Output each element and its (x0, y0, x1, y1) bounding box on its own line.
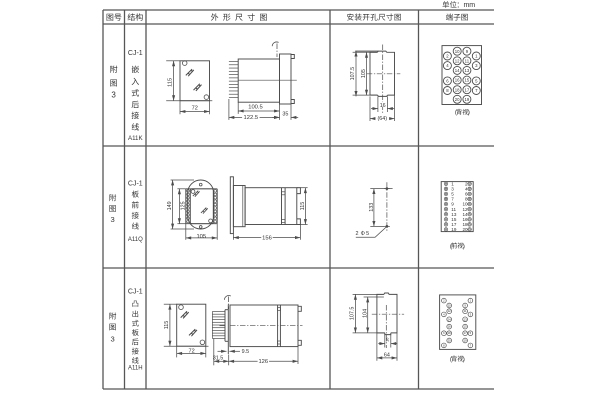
svg-text:10: 10 (455, 49, 460, 54)
svg-text:64: 64 (384, 353, 390, 359)
svg-text:19: 19 (464, 339, 467, 343)
svg-text:19: 19 (465, 97, 470, 102)
svg-text:A11Q: A11Q (128, 237, 143, 243)
svg-text:CJ-1: CJ-1 (128, 181, 143, 188)
svg-text:31.5: 31.5 (213, 356, 224, 362)
svg-text:): ) (468, 109, 470, 116)
svg-text:20: 20 (448, 339, 451, 343)
svg-text:125: 125 (181, 201, 187, 210)
svg-text:14: 14 (455, 68, 460, 73)
svg-text:16: 16 (455, 78, 460, 83)
svg-text:100.5: 100.5 (248, 104, 263, 110)
svg-text:CJ-1: CJ-1 (128, 289, 143, 296)
svg-text:16: 16 (448, 325, 451, 329)
svg-text:17: 17 (465, 87, 470, 92)
svg-text:115: 115 (300, 202, 306, 211)
svg-text:133: 133 (369, 203, 375, 212)
svg-text:16: 16 (384, 338, 389, 342)
svg-text:104: 104 (362, 309, 368, 318)
svg-text:15: 15 (465, 78, 470, 83)
svg-text:19: 19 (451, 227, 457, 232)
svg-text:16: 16 (380, 103, 386, 109)
svg-text:3: 3 (110, 215, 114, 224)
svg-text:): ) (463, 356, 465, 363)
svg-text:126: 126 (258, 359, 268, 365)
svg-text:13: 13 (465, 68, 470, 73)
svg-text:11: 11 (465, 58, 470, 63)
svg-text:122.5: 122.5 (244, 115, 259, 121)
svg-text:12: 12 (455, 58, 460, 63)
svg-text:14: 14 (448, 317, 451, 321)
svg-text:107.5: 107.5 (350, 67, 356, 81)
svg-text:149: 149 (167, 201, 173, 210)
svg-text:15: 15 (464, 325, 467, 329)
svg-text:CJ-1: CJ-1 (128, 50, 143, 57)
svg-text:3: 3 (110, 334, 114, 343)
svg-text:3: 3 (111, 91, 116, 100)
svg-text:9.5: 9.5 (242, 349, 250, 355)
svg-text:(64): (64) (378, 116, 388, 122)
svg-text:18: 18 (455, 87, 460, 92)
svg-text:115: 115 (164, 321, 170, 330)
svg-text:A11K: A11K (128, 135, 144, 142)
svg-text:107.5: 107.5 (349, 307, 355, 321)
svg-text:12: 12 (448, 309, 451, 313)
svg-text:115: 115 (167, 78, 173, 87)
svg-text:105: 105 (196, 234, 206, 240)
svg-text:20: 20 (455, 97, 460, 102)
svg-text:：mm: ：mm (456, 2, 475, 9)
svg-text:13: 13 (464, 317, 467, 321)
svg-text:156: 156 (262, 235, 272, 241)
svg-text:35: 35 (282, 112, 288, 118)
svg-text:20: 20 (462, 227, 468, 232)
svg-text:72: 72 (188, 348, 194, 354)
svg-text:72: 72 (192, 105, 198, 111)
svg-text:10: 10 (448, 304, 451, 308)
svg-text:2: 2 (356, 231, 359, 237)
svg-text:5: 5 (366, 231, 369, 237)
svg-text:): ) (463, 243, 465, 250)
svg-text:17: 17 (464, 331, 467, 335)
svg-text:18: 18 (448, 331, 451, 335)
svg-text:A11H: A11H (128, 366, 143, 372)
svg-text:105: 105 (361, 69, 367, 78)
